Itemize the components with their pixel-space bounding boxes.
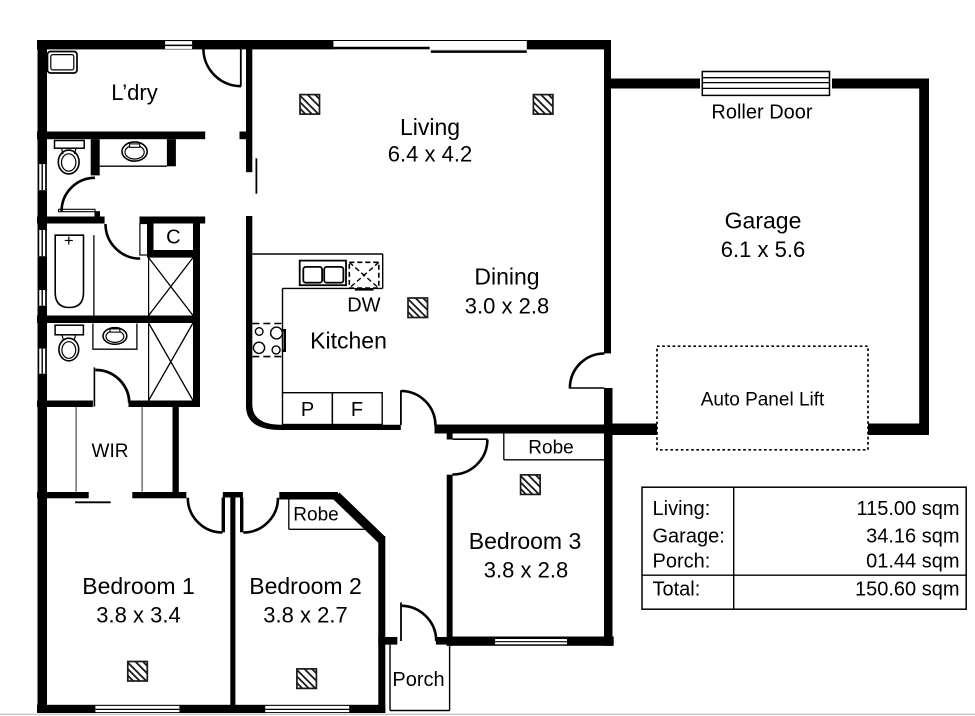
svg-text:3.8 x 3.4: 3.8 x 3.4 [96,603,180,628]
svg-text:Garage: Garage [725,208,802,234]
svg-text:6.1 x 5.6: 6.1 x 5.6 [721,237,805,262]
svg-text:Robe: Robe [293,505,338,526]
svg-text:Bedroom 3: Bedroom 3 [469,528,582,554]
svg-text:3.0 x 2.8: 3.0 x 2.8 [465,294,549,319]
svg-text:Kitchen: Kitchen [310,328,387,354]
svg-text:WIR: WIR [92,441,129,462]
svg-text:Robe: Robe [528,438,573,459]
svg-text:F: F [351,399,363,421]
svg-text:Total:: Total: [653,579,701,601]
svg-text:Porch:: Porch: [653,551,711,573]
svg-text:Garage:: Garage: [653,526,725,548]
svg-text:Roller Door: Roller Door [711,102,812,124]
svg-text:01.44 sqm: 01.44 sqm [866,551,959,573]
svg-text:P: P [301,399,314,421]
svg-text:3.8 x 2.7: 3.8 x 2.7 [263,603,347,628]
svg-text:150.60 sqm: 150.60 sqm [855,579,960,601]
svg-text:6.4 x 4.2: 6.4 x 4.2 [388,142,472,167]
svg-text:3.8 x 2.8: 3.8 x 2.8 [484,558,568,583]
svg-text:L’dry: L’dry [111,80,157,105]
svg-text:Bedroom 2: Bedroom 2 [249,573,362,599]
svg-text:Dining: Dining [474,264,539,290]
svg-text:Auto Panel Lift: Auto Panel Lift [701,390,825,411]
svg-text:DW: DW [347,295,380,317]
svg-text:Porch: Porch [392,669,444,691]
svg-text:115.00 sqm: 115.00 sqm [856,498,959,520]
svg-text:Bedroom 1: Bedroom 1 [82,573,195,599]
svg-text:34.16 sqm: 34.16 sqm [866,526,959,548]
svg-text:Living:: Living: [653,498,711,520]
svg-text:C: C [166,227,180,249]
svg-text:Living: Living [400,114,460,140]
